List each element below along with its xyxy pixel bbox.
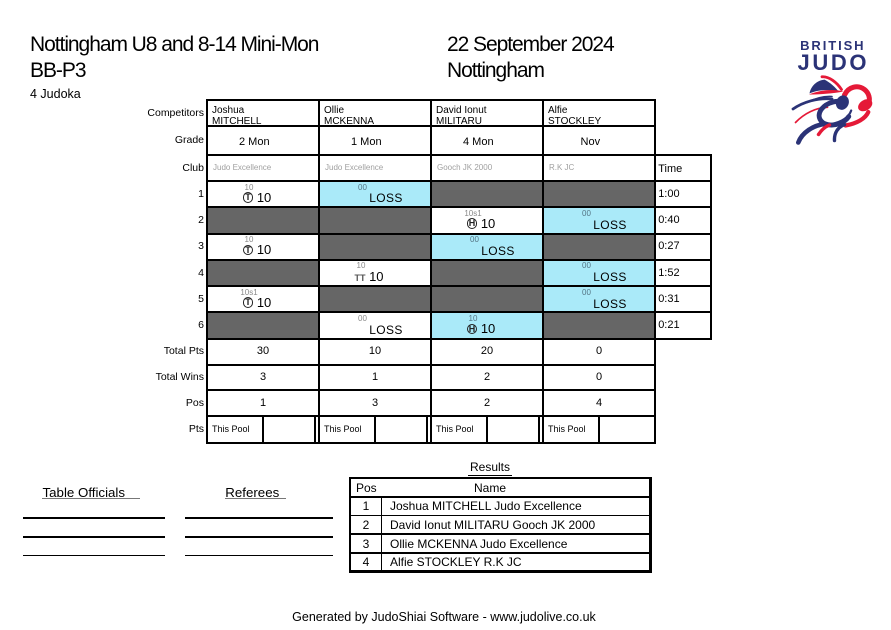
svg-text:JUDO: JUDO [798,50,870,75]
